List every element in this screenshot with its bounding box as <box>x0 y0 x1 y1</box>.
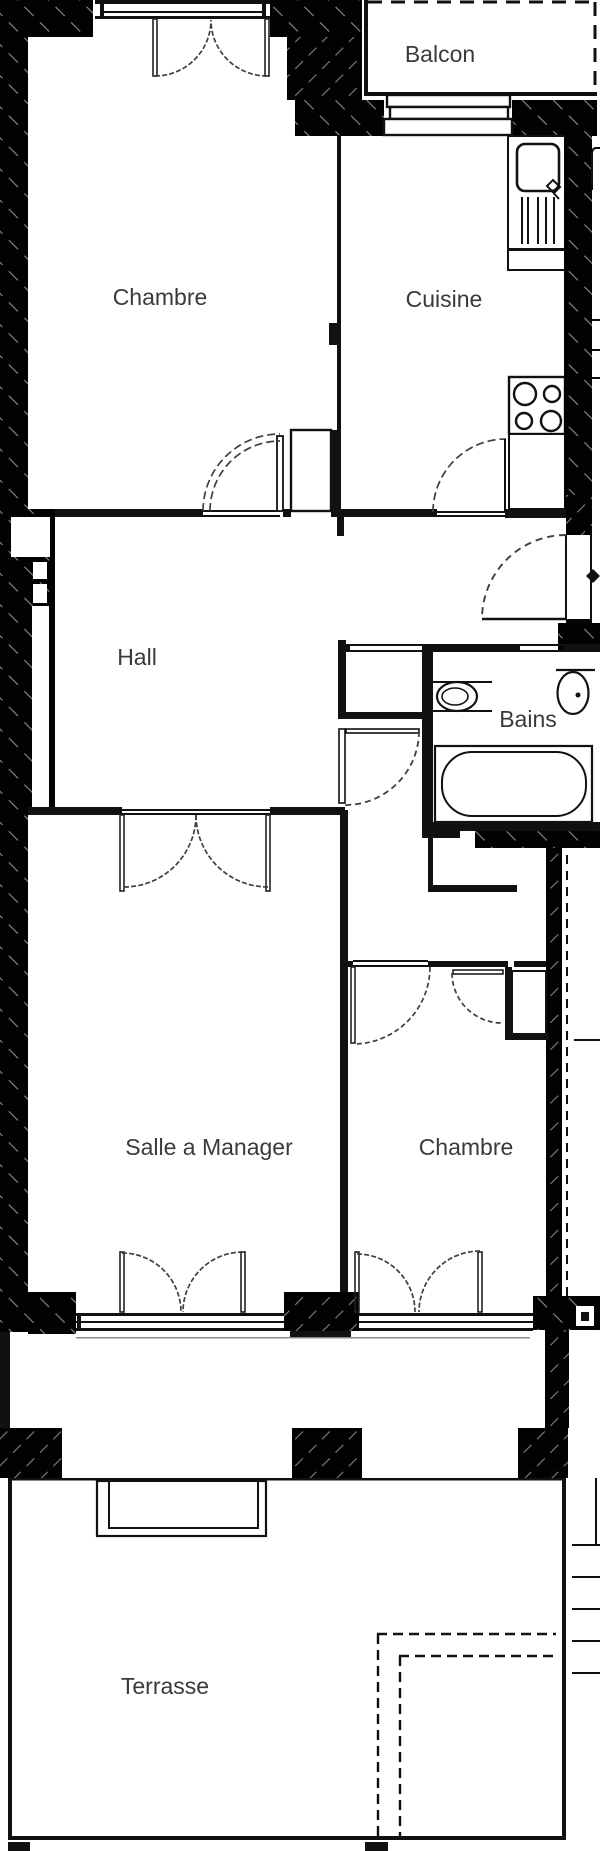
svg-text:Cuisine: Cuisine <box>406 286 483 312</box>
svg-text:Chambre: Chambre <box>113 284 208 310</box>
svg-text:Hall: Hall <box>117 644 157 670</box>
svg-text:Balcon: Balcon <box>405 41 475 67</box>
svg-text:Salle a Manager: Salle a Manager <box>125 1134 293 1160</box>
svg-text:Bains: Bains <box>499 706 557 732</box>
svg-text:Chambre: Chambre <box>419 1134 514 1160</box>
svg-text:Terrasse: Terrasse <box>121 1673 209 1699</box>
